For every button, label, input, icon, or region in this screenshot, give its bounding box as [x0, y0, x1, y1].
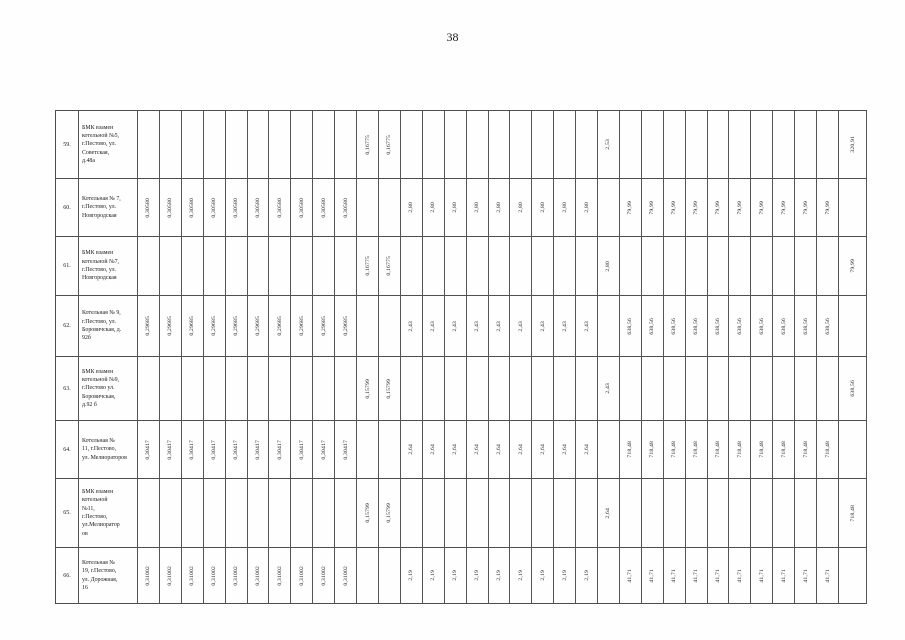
- value-cell: 0,29685: [204, 296, 226, 357]
- value-cell: 0,31002: [160, 548, 182, 604]
- value-cell: [817, 357, 839, 421]
- rotated-value: 2,19: [540, 570, 546, 581]
- value-cell: [248, 237, 270, 296]
- rotated-value: 638,56: [803, 318, 809, 335]
- value-cell: [401, 357, 423, 421]
- value-cell: [839, 421, 867, 479]
- value-cell: 41,71: [817, 548, 839, 604]
- value-cell: 0,30580: [160, 179, 182, 237]
- rotated-value: 718,48: [737, 441, 743, 458]
- rotated-value: 2,43: [430, 321, 436, 332]
- value-cell: [357, 421, 379, 479]
- value-cell: 0,30417: [182, 421, 204, 479]
- value-cell: 0,31002: [182, 548, 204, 604]
- rotated-value: 2,80: [496, 202, 502, 213]
- value-cell: 0,29685: [248, 296, 270, 357]
- rotated-value: 2,80: [518, 202, 524, 213]
- value-cell: 79,99: [751, 179, 773, 237]
- boiler-name-line: котельной №5,: [82, 132, 119, 140]
- rotated-value: 0,30580: [343, 198, 349, 218]
- rotated-value: 79,99: [803, 201, 809, 215]
- boiler-name-line: г.Пестово, ул.: [82, 140, 116, 148]
- value-cell: [620, 357, 642, 421]
- rotated-value: 2,64: [518, 444, 524, 455]
- value-cell: [664, 237, 686, 296]
- boiler-name-line: 16: [82, 584, 88, 592]
- boiler-name-cell: Котельная № 7,г.Пестово, ул.Новгородская: [79, 179, 138, 237]
- value-cell: [269, 111, 291, 179]
- value-cell: [269, 479, 291, 548]
- value-cell: [269, 237, 291, 296]
- value-cell: [576, 237, 598, 296]
- value-cell: 0,30580: [182, 179, 204, 237]
- rotated-value: 320,91: [850, 136, 856, 153]
- rotated-value: 79,99: [825, 201, 831, 215]
- value-cell: [554, 357, 576, 421]
- value-cell: 718,48: [708, 421, 730, 479]
- value-cell: 79,99: [708, 179, 730, 237]
- table-row: 64.Котельная №11, г.Пестово,ул. Мелиорат…: [56, 421, 867, 479]
- value-cell: [686, 479, 708, 548]
- rotated-value: 0,30580: [189, 198, 195, 218]
- value-cell: 0,31002: [291, 548, 313, 604]
- rotated-value: 2,43: [496, 321, 502, 332]
- value-cell: [686, 357, 708, 421]
- value-cell: 0,30580: [248, 179, 270, 237]
- boiler-name-cell: БМК взаменкотельной №5,г.Пестово, ул.Сов…: [79, 111, 138, 179]
- value-cell: 0,29685: [160, 296, 182, 357]
- value-cell: 2,64: [576, 421, 598, 479]
- rotated-value: 2,80: [408, 202, 414, 213]
- rotated-value: 41,71: [737, 569, 743, 583]
- value-cell: [795, 479, 817, 548]
- value-cell: [708, 237, 730, 296]
- value-cell: 79,99: [664, 179, 686, 237]
- boiler-name-line: 11, г.Пестово,: [82, 445, 116, 453]
- value-cell: [620, 111, 642, 179]
- value-cell: 2,80: [510, 179, 532, 237]
- value-cell: 2,80: [576, 179, 598, 237]
- value-cell: [510, 111, 532, 179]
- rotated-value: 718,48: [693, 441, 699, 458]
- value-cell: [686, 237, 708, 296]
- value-cell: 41,71: [773, 548, 795, 604]
- boiler-name-line: Котельная № 7,: [82, 195, 121, 203]
- rotated-value: 0,30417: [145, 440, 151, 460]
- value-cell: [576, 357, 598, 421]
- value-cell: [620, 479, 642, 548]
- rotated-value: 0,16775: [386, 135, 392, 155]
- value-cell: 718,48: [817, 421, 839, 479]
- value-cell: [773, 111, 795, 179]
- rotated-value: 2,19: [496, 570, 502, 581]
- value-cell: 638,56: [773, 296, 795, 357]
- rotated-value: 0,30417: [343, 440, 349, 460]
- value-cell: [182, 357, 204, 421]
- rotated-value: 0,15799: [365, 379, 371, 399]
- value-cell: 638,56: [620, 296, 642, 357]
- value-cell: 2,64: [598, 479, 620, 548]
- rotated-value: 0,30417: [277, 440, 283, 460]
- value-cell: [532, 237, 554, 296]
- value-cell: [751, 357, 773, 421]
- value-cell: 0,15799: [357, 357, 379, 421]
- rotated-value: 41,71: [825, 569, 831, 583]
- value-cell: 79,99: [642, 179, 664, 237]
- value-cell: 0,30580: [138, 179, 160, 237]
- rotated-value: 2,64: [605, 508, 611, 519]
- value-cell: 2,80: [554, 179, 576, 237]
- value-cell: 638,56: [751, 296, 773, 357]
- rotated-value: 79,99: [649, 201, 655, 215]
- value-cell: [708, 357, 730, 421]
- boiler-name-line: г.Пестово,: [82, 513, 107, 521]
- value-cell: [335, 479, 357, 548]
- value-cell: 718,48: [839, 479, 867, 548]
- value-cell: [401, 111, 423, 179]
- value-cell: [729, 479, 751, 548]
- rotated-value: 0,15799: [365, 503, 371, 523]
- value-cell: 0,30580: [269, 179, 291, 237]
- value-cell: [445, 479, 467, 548]
- rotated-value: 0,29685: [277, 316, 283, 336]
- rotated-value: 0,31002: [167, 566, 173, 586]
- boiler-name-line: г.Пестово ул.: [82, 384, 115, 392]
- rotated-value: 0,30417: [299, 440, 305, 460]
- value-cell: [401, 237, 423, 296]
- value-cell: [138, 479, 160, 548]
- rotated-value: 0,31002: [277, 566, 283, 586]
- rotated-value: 638,56: [715, 318, 721, 335]
- value-cell: [532, 479, 554, 548]
- value-cell: 41,71: [795, 548, 817, 604]
- value-cell: [576, 479, 598, 548]
- value-cell: [291, 479, 313, 548]
- rotated-value: 0,30580: [299, 198, 305, 218]
- value-cell: 0,31002: [138, 548, 160, 604]
- rotated-value: 2,19: [430, 570, 436, 581]
- boiler-name-line: котельной №7,: [82, 258, 119, 266]
- value-cell: 41,71: [708, 548, 730, 604]
- boiler-name-line: Новгородская: [82, 212, 117, 220]
- rotated-value: 718,48: [803, 441, 809, 458]
- rotated-value: 41,71: [649, 569, 655, 583]
- value-cell: 41,71: [664, 548, 686, 604]
- value-cell: [248, 479, 270, 548]
- rotated-value: 2,43: [408, 321, 414, 332]
- rotated-value: 638,56: [759, 318, 765, 335]
- boiler-name-line: г.Пестово, ул.: [82, 203, 116, 211]
- value-cell: 0,31002: [335, 548, 357, 604]
- value-cell: 2,19: [510, 548, 532, 604]
- boiler-name-line: д.48а: [82, 157, 95, 165]
- value-cell: [795, 357, 817, 421]
- table-row: 62.Котельная № 9,г.Пестово, ул.Боровичск…: [56, 296, 867, 357]
- value-cell: 0,30580: [335, 179, 357, 237]
- value-cell: 2,64: [445, 421, 467, 479]
- value-cell: [423, 479, 445, 548]
- value-cell: 2,64: [489, 421, 511, 479]
- value-cell: 2,19: [576, 548, 598, 604]
- rotated-value: 2,43: [518, 321, 524, 332]
- value-cell: [751, 237, 773, 296]
- value-cell: [313, 357, 335, 421]
- value-cell: 2,80: [401, 179, 423, 237]
- value-cell: 718,48: [773, 421, 795, 479]
- rotated-value: 0,29685: [189, 316, 195, 336]
- rotated-value: 2,64: [408, 444, 414, 455]
- value-cell: 2,19: [445, 548, 467, 604]
- boiler-name-line: ов: [82, 530, 88, 538]
- rotated-value: 0,30417: [167, 440, 173, 460]
- value-cell: [357, 548, 379, 604]
- value-cell: 638,56: [839, 357, 867, 421]
- boiler-name-line: котельной №9,: [82, 376, 119, 384]
- value-cell: [642, 479, 664, 548]
- value-cell: 0,15799: [379, 479, 401, 548]
- value-cell: 2,64: [467, 421, 489, 479]
- rotated-value: 638,56: [781, 318, 787, 335]
- rotated-value: 0,30417: [321, 440, 327, 460]
- rotated-value: 2,64: [562, 444, 568, 455]
- rotated-value: 0,16775: [365, 135, 371, 155]
- rotated-value: 638,56: [825, 318, 831, 335]
- row-number-cell: 65.: [56, 479, 79, 548]
- boiler-name-line: №11,: [82, 505, 95, 513]
- value-cell: [182, 111, 204, 179]
- value-cell: 2,43: [532, 296, 554, 357]
- rotated-value: 0,30580: [211, 198, 217, 218]
- value-cell: 79,99: [795, 179, 817, 237]
- value-cell: [138, 357, 160, 421]
- value-cell: [598, 296, 620, 357]
- value-cell: [204, 111, 226, 179]
- rotated-value: 79,99: [850, 259, 856, 273]
- table-row: 61.БМК взаменкотельной №7,г.Пестово, ул.…: [56, 237, 867, 296]
- value-cell: [729, 237, 751, 296]
- value-cell: [291, 237, 313, 296]
- rotated-value: 2,19: [584, 570, 590, 581]
- rotated-value: 41,71: [715, 569, 721, 583]
- value-cell: 0,29685: [313, 296, 335, 357]
- value-cell: [445, 111, 467, 179]
- rotated-value: 2,53: [605, 139, 611, 150]
- table-row: 66.Котельная №19, г.Пестово,ул. Дорожная…: [56, 548, 867, 604]
- value-cell: 2,43: [445, 296, 467, 357]
- value-cell: 2,64: [401, 421, 423, 479]
- rotated-value: 718,48: [627, 441, 633, 458]
- value-cell: 79,99: [620, 179, 642, 237]
- rotated-value: 0,29685: [321, 316, 327, 336]
- rotated-value: 0,30580: [277, 198, 283, 218]
- rotated-value: 0,31002: [255, 566, 261, 586]
- rotated-value: 79,99: [693, 201, 699, 215]
- value-cell: 0,30580: [313, 179, 335, 237]
- value-cell: [182, 237, 204, 296]
- value-cell: 0,30417: [291, 421, 313, 479]
- boiler-name-line: ул.Мелиоратор: [82, 521, 120, 529]
- rotated-value: 0,30417: [189, 440, 195, 460]
- rotated-value: 2,43: [605, 383, 611, 394]
- rotated-value: 2,80: [540, 202, 546, 213]
- value-cell: 2,64: [554, 421, 576, 479]
- value-cell: [642, 111, 664, 179]
- value-cell: 2,64: [423, 421, 445, 479]
- value-cell: [489, 237, 511, 296]
- rotated-value: 0,30580: [167, 198, 173, 218]
- value-cell: 0,31002: [248, 548, 270, 604]
- value-cell: 0,30417: [138, 421, 160, 479]
- value-cell: 2,64: [510, 421, 532, 479]
- boiler-name-line: ул. Мелиораторов: [82, 454, 127, 462]
- value-cell: [664, 357, 686, 421]
- value-cell: [817, 237, 839, 296]
- rotated-value: 638,56: [649, 318, 655, 335]
- value-cell: [467, 479, 489, 548]
- rotated-value: 2,80: [474, 202, 480, 213]
- rotated-value: 2,64: [452, 444, 458, 455]
- value-cell: 2,43: [576, 296, 598, 357]
- boiler-name-line: Котельная №: [82, 559, 115, 567]
- boiler-name-line: г.Пестово, ул.: [82, 266, 116, 274]
- value-cell: 41,71: [751, 548, 773, 604]
- rotated-value: 2,80: [452, 202, 458, 213]
- value-cell: 2,43: [423, 296, 445, 357]
- table-row: 60.Котельная № 7,г.Пестово, ул.Новгородс…: [56, 179, 867, 237]
- rotated-value: 0,29685: [233, 316, 239, 336]
- boiler-name-line: котельной: [82, 496, 108, 504]
- value-cell: [576, 111, 598, 179]
- boiler-name-cell: БМК взаменкотельной №9,г.Пестово ул.Боро…: [79, 357, 138, 421]
- value-cell: [554, 479, 576, 548]
- value-cell: 0,30417: [313, 421, 335, 479]
- rotated-value: 718,48: [715, 441, 721, 458]
- rotated-value: 2,19: [562, 570, 568, 581]
- boiler-name-line: Новгородская: [82, 274, 117, 282]
- rotated-value: 638,56: [627, 318, 633, 335]
- boiler-name-cell: БМК взаменкотельной№11,г.Пестово,ул.Мели…: [79, 479, 138, 548]
- value-cell: [313, 479, 335, 548]
- rotated-value: 718,48: [649, 441, 655, 458]
- value-cell: [510, 479, 532, 548]
- value-cell: 0,16775: [357, 237, 379, 296]
- value-cell: [160, 357, 182, 421]
- value-cell: [708, 479, 730, 548]
- value-cell: [664, 479, 686, 548]
- rotated-value: 0,30417: [255, 440, 261, 460]
- value-cell: [489, 111, 511, 179]
- value-cell: [532, 111, 554, 179]
- value-cell: [204, 479, 226, 548]
- value-cell: 0,16775: [379, 111, 401, 179]
- rotated-value: 638,56: [737, 318, 743, 335]
- value-cell: [467, 111, 489, 179]
- row-number-cell: 59.: [56, 111, 79, 179]
- value-cell: [379, 296, 401, 357]
- rotated-value: 41,71: [759, 569, 765, 583]
- rotated-value: 41,71: [693, 569, 699, 583]
- value-cell: [729, 111, 751, 179]
- boiler-name-line: Советская,: [82, 149, 109, 157]
- value-cell: 2,80: [423, 179, 445, 237]
- rotated-value: 0,30417: [211, 440, 217, 460]
- page-number: 38: [0, 30, 905, 45]
- value-cell: [335, 237, 357, 296]
- value-cell: 2,19: [489, 548, 511, 604]
- value-cell: 2,19: [467, 548, 489, 604]
- boiler-name-line: 19, г.Пестово,: [82, 567, 116, 575]
- value-cell: 79,99: [773, 179, 795, 237]
- rotated-value: 718,48: [781, 441, 787, 458]
- value-cell: 718,48: [686, 421, 708, 479]
- value-cell: [313, 111, 335, 179]
- boiler-name-cell: Котельная №11, г.Пестово,ул. Мелиораторо…: [79, 421, 138, 479]
- value-cell: 638,56: [664, 296, 686, 357]
- rotated-value: 2,80: [584, 202, 590, 213]
- value-cell: 0,29685: [269, 296, 291, 357]
- value-cell: 2,19: [532, 548, 554, 604]
- value-cell: [226, 237, 248, 296]
- row-number-cell: 63.: [56, 357, 79, 421]
- value-cell: 638,56: [642, 296, 664, 357]
- value-cell: 2,80: [489, 179, 511, 237]
- value-cell: 41,71: [620, 548, 642, 604]
- rotated-value: 0,16775: [365, 256, 371, 276]
- value-cell: 0,29685: [335, 296, 357, 357]
- value-cell: [335, 111, 357, 179]
- rotated-value: 2,80: [562, 202, 568, 213]
- value-cell: 0,30417: [204, 421, 226, 479]
- boiler-name-line: ул. Дорожная,: [82, 576, 117, 584]
- rotated-value: 41,71: [803, 569, 809, 583]
- value-cell: [773, 237, 795, 296]
- value-cell: 0,30580: [226, 179, 248, 237]
- value-cell: 0,30580: [204, 179, 226, 237]
- value-cell: 41,71: [642, 548, 664, 604]
- value-cell: [401, 479, 423, 548]
- value-cell: [489, 357, 511, 421]
- boiler-name-line: Котельная № 9,: [82, 309, 121, 317]
- value-cell: 2,80: [598, 237, 620, 296]
- value-cell: [708, 111, 730, 179]
- rotated-value: 79,99: [715, 201, 721, 215]
- rotated-value: 0,30580: [321, 198, 327, 218]
- value-cell: 41,71: [729, 548, 751, 604]
- value-cell: [204, 237, 226, 296]
- value-cell: [226, 479, 248, 548]
- value-cell: [642, 237, 664, 296]
- value-cell: [248, 111, 270, 179]
- tariff-table: 59.БМК взаменкотельной №5,г.Пестово, ул.…: [55, 110, 867, 604]
- value-cell: [467, 237, 489, 296]
- rotated-value: 41,71: [627, 569, 633, 583]
- rotated-value: 0,31002: [299, 566, 305, 586]
- value-cell: [379, 421, 401, 479]
- rotated-value: 79,99: [737, 201, 743, 215]
- rotated-value: 2,80: [430, 202, 436, 213]
- rotated-value: 0,31002: [145, 566, 151, 586]
- value-cell: 0,31002: [226, 548, 248, 604]
- value-cell: 718,48: [729, 421, 751, 479]
- value-cell: [357, 296, 379, 357]
- boiler-name-line: БМК взамен: [82, 368, 113, 376]
- value-cell: [445, 237, 467, 296]
- value-cell: 0,16775: [357, 111, 379, 179]
- value-cell: [839, 296, 867, 357]
- value-cell: [423, 111, 445, 179]
- value-cell: [248, 357, 270, 421]
- value-cell: [160, 111, 182, 179]
